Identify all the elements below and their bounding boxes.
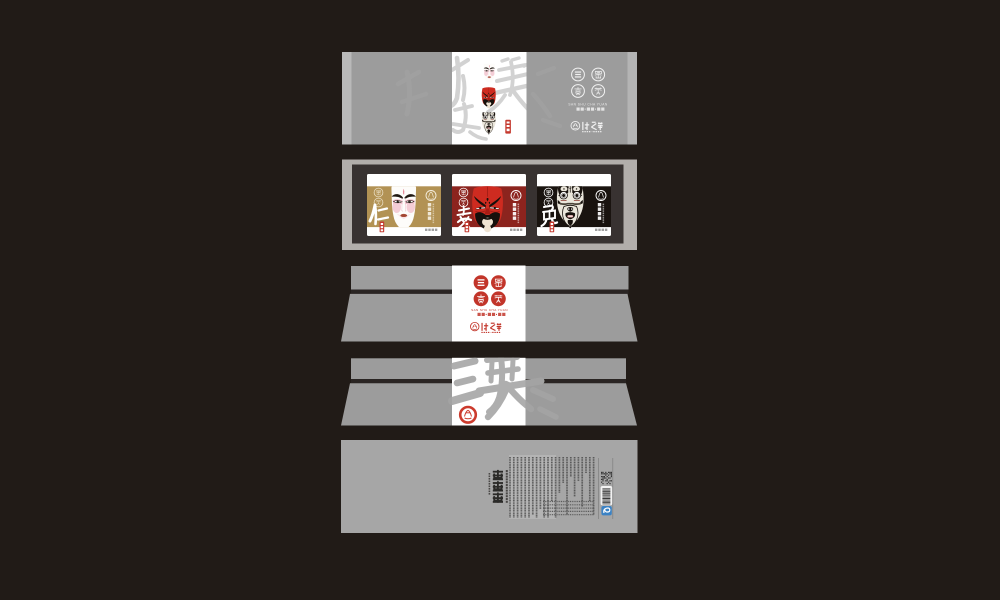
svg-text:SAN SHU CHA YUAN: SAN SHU CHA YUAN [568,102,607,106]
svg-text:SAN SHU CHA YUAN: SAN SHU CHA YUAN [471,308,508,312]
